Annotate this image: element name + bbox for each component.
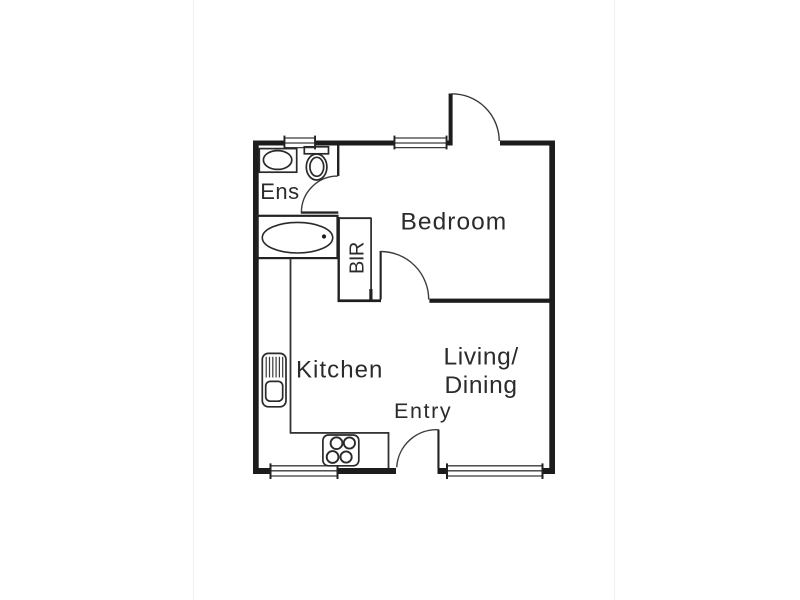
svg-text:Entry: Entry [394, 399, 452, 423]
svg-text:Living/: Living/ [444, 344, 519, 371]
svg-text:Bedroom: Bedroom [401, 209, 508, 236]
svg-text:Dining: Dining [445, 372, 518, 399]
svg-text:Ens: Ens [260, 179, 299, 204]
svg-text:Kitchen: Kitchen [296, 357, 383, 384]
svg-text:BIR: BIR [346, 242, 368, 274]
